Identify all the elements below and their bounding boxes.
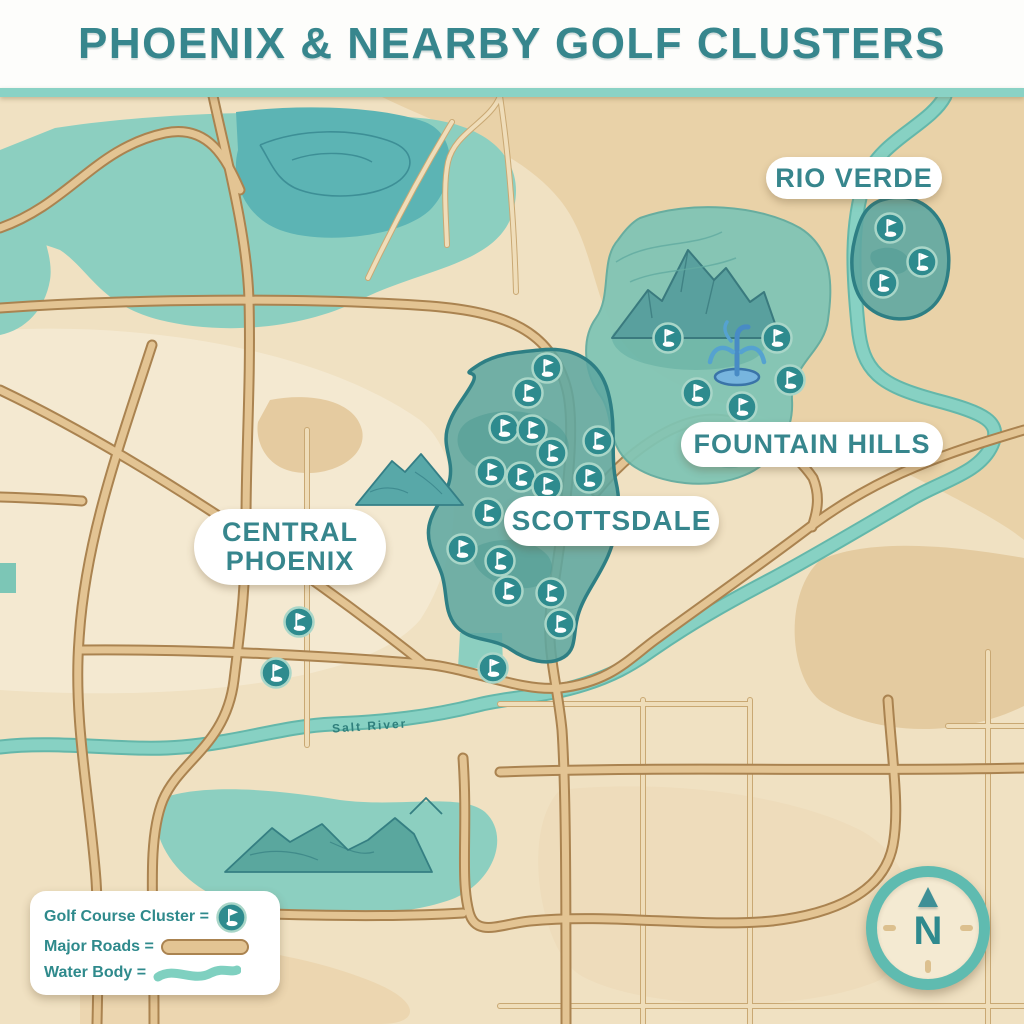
label-scottsdale: SCOTTSDALE: [504, 496, 719, 546]
compass-tick-east: [960, 925, 973, 931]
compass-tick-west: [883, 925, 896, 931]
compass-north-arrow-icon: [918, 887, 938, 907]
legend: Golf Course Cluster = Major Roads = Wate…: [30, 891, 280, 995]
golf-marker[interactable]: [486, 547, 515, 576]
compass: N: [866, 866, 990, 990]
road-swatch: [161, 939, 249, 955]
golf-marker[interactable]: [728, 393, 757, 422]
golf-marker[interactable]: [537, 579, 566, 608]
golf-marker[interactable]: [285, 608, 314, 637]
legend-row-water-body: Water Body =: [44, 961, 266, 985]
golf-marker[interactable]: [869, 269, 898, 298]
compass-north-label: N: [914, 909, 943, 954]
label-central-phoenix: CENTRAL PHOENIX: [194, 509, 386, 585]
legend-row-golf-cluster: Golf Course Cluster =: [44, 902, 266, 933]
golf-marker[interactable]: [908, 248, 937, 277]
page-title: PHOENIX & NEARBY GOLF CLUSTERS: [78, 19, 946, 69]
golf-marker[interactable]: [474, 499, 503, 528]
golf-marker[interactable]: [262, 659, 291, 688]
golf-marker[interactable]: [763, 324, 792, 353]
legend-row-major-roads: Major Roads =: [44, 938, 266, 956]
golf-marker[interactable]: [776, 366, 805, 395]
header-accent-strip: [0, 88, 1024, 97]
water-swatch: [153, 961, 241, 985]
legend-water-label: Water Body =: [44, 964, 146, 982]
golf-marker[interactable]: [876, 214, 905, 243]
legend-golf-label: Golf Course Cluster =: [44, 908, 209, 926]
golf-marker[interactable]: [479, 654, 508, 683]
golf-marker[interactable]: [533, 354, 562, 383]
golf-marker[interactable]: [546, 610, 575, 639]
label-fountain-hills: FOUNTAIN HILLS: [681, 422, 943, 467]
header-banner: PHOENIX & NEARBY GOLF CLUSTERS: [0, 0, 1024, 88]
golf-marker[interactable]: [584, 427, 613, 456]
golf-marker[interactable]: [477, 458, 506, 487]
golf-marker[interactable]: [654, 324, 683, 353]
golf-marker[interactable]: [494, 577, 523, 606]
golf-marker[interactable]: [538, 439, 567, 468]
golf-marker[interactable]: [518, 416, 547, 445]
golf-marker[interactable]: [507, 463, 536, 492]
golf-marker[interactable]: [514, 379, 543, 408]
legend-roads-label: Major Roads =: [44, 938, 154, 956]
golf-marker[interactable]: [490, 414, 519, 443]
golf-marker[interactable]: [575, 464, 604, 493]
golf-marker[interactable]: [683, 379, 712, 408]
label-rio-verde: RIO VERDE: [766, 157, 942, 199]
golf-cluster-icon: [216, 902, 247, 933]
map-screenshot: PHOENIX & NEARBY GOLF CLUSTERS RIO VERDE…: [0, 0, 1024, 1024]
golf-marker[interactable]: [448, 535, 477, 564]
compass-tick-south: [925, 960, 931, 973]
